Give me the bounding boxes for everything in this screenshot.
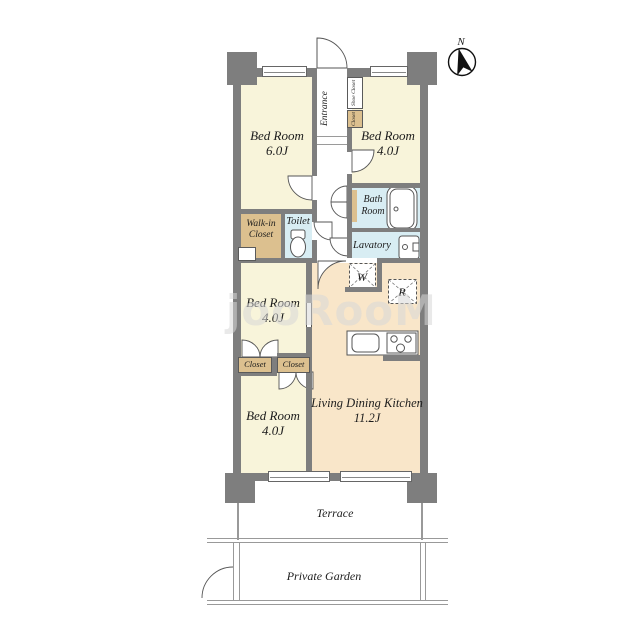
kitchen-stove (387, 333, 416, 353)
floor-plan: W R N (0, 0, 640, 640)
room-name: Bath (352, 194, 394, 206)
room-size: 6.0J (237, 143, 317, 158)
basin-handle (413, 243, 419, 251)
room-name: Room (352, 206, 394, 218)
entrance-step-line (317, 144, 347, 145)
wall-bath-top (352, 183, 420, 188)
wall-top (347, 68, 370, 77)
toilet-label: Toilet (277, 216, 319, 228)
room-name: Bed Room (233, 408, 313, 423)
toilet-bowl (291, 237, 306, 257)
bedroom-4-bottom-label: Bed Room 4.0J (233, 408, 313, 439)
entrance-label: Entrance (320, 80, 330, 138)
bathroom-label: Bath Room (352, 194, 394, 218)
room-name: Closet (240, 230, 282, 241)
closet-left-label: Closet (238, 359, 272, 369)
north-label: N (456, 36, 465, 48)
garden-gate-arc (202, 567, 233, 598)
site-watermark: jooRooM (226, 286, 426, 335)
terrace-label: Terrace (285, 506, 385, 520)
wall-kitchen-stub (383, 355, 428, 361)
room-name: Closet (238, 359, 272, 369)
washer-label: W (357, 270, 368, 284)
bedroom-6-label: Bed Room 6.0J (237, 128, 317, 159)
room-size: 11.2J (306, 411, 428, 426)
hall-closet-door-arc (331, 202, 347, 218)
room-name: Terrace (285, 506, 385, 520)
room-name: Bed Room (348, 128, 428, 143)
room-name: Walk-in (240, 219, 282, 230)
window-bottom-left (268, 471, 330, 482)
room-name: Toilet (277, 216, 319, 228)
wall-top (307, 68, 317, 77)
room-name: Private Garden (264, 569, 384, 583)
pillar-bottom-left (225, 473, 255, 503)
ldk-door-arc (318, 261, 346, 289)
pipe-space-box (238, 247, 256, 261)
wall-hall-left (312, 77, 317, 176)
entry-closet-label: Closet (351, 111, 357, 127)
window-top-left (262, 66, 307, 77)
wall-bedroom6-bottom (233, 209, 317, 214)
closet-right-door-arc (279, 372, 296, 389)
window-bottom-right (340, 471, 412, 482)
wall-lavatory-bottom (382, 258, 420, 263)
room-size: 4.0J (348, 143, 428, 158)
lavatory-label: Lavatory (341, 240, 403, 252)
walk-in-closet-label: Walk-in Closet (240, 219, 282, 241)
room-name: Closet (277, 359, 310, 369)
private-garden-label: Private Garden (264, 569, 384, 583)
closet-left-door-arc (260, 340, 278, 357)
wall-bath-lavatory (352, 228, 420, 232)
pillar-top-left (227, 52, 257, 85)
kitchen-sink (352, 334, 379, 352)
bedroom-4-top-label: Bed Room 4.0J (348, 128, 428, 159)
ldk-label: Living Dining Kitchen 11.2J (306, 396, 428, 426)
north-compass: N (449, 36, 476, 76)
room-name: Living Dining Kitchen (306, 396, 428, 411)
hall-closet-door-arc (331, 186, 347, 202)
shoe-closet-label: Shoe Closet (351, 79, 357, 107)
room-name: Bed Room (237, 128, 317, 143)
room-size: 4.0J (233, 423, 313, 438)
closet-right-label: Closet (277, 359, 310, 369)
room-name: Lavatory (341, 240, 403, 252)
entrance-door-arc (317, 38, 347, 68)
bedroom6-door-arc (288, 176, 312, 200)
pillar-top-right (407, 52, 437, 85)
window-top-right (370, 66, 408, 77)
closet-left-door-arc (242, 340, 260, 357)
wall-bottom (330, 473, 340, 481)
